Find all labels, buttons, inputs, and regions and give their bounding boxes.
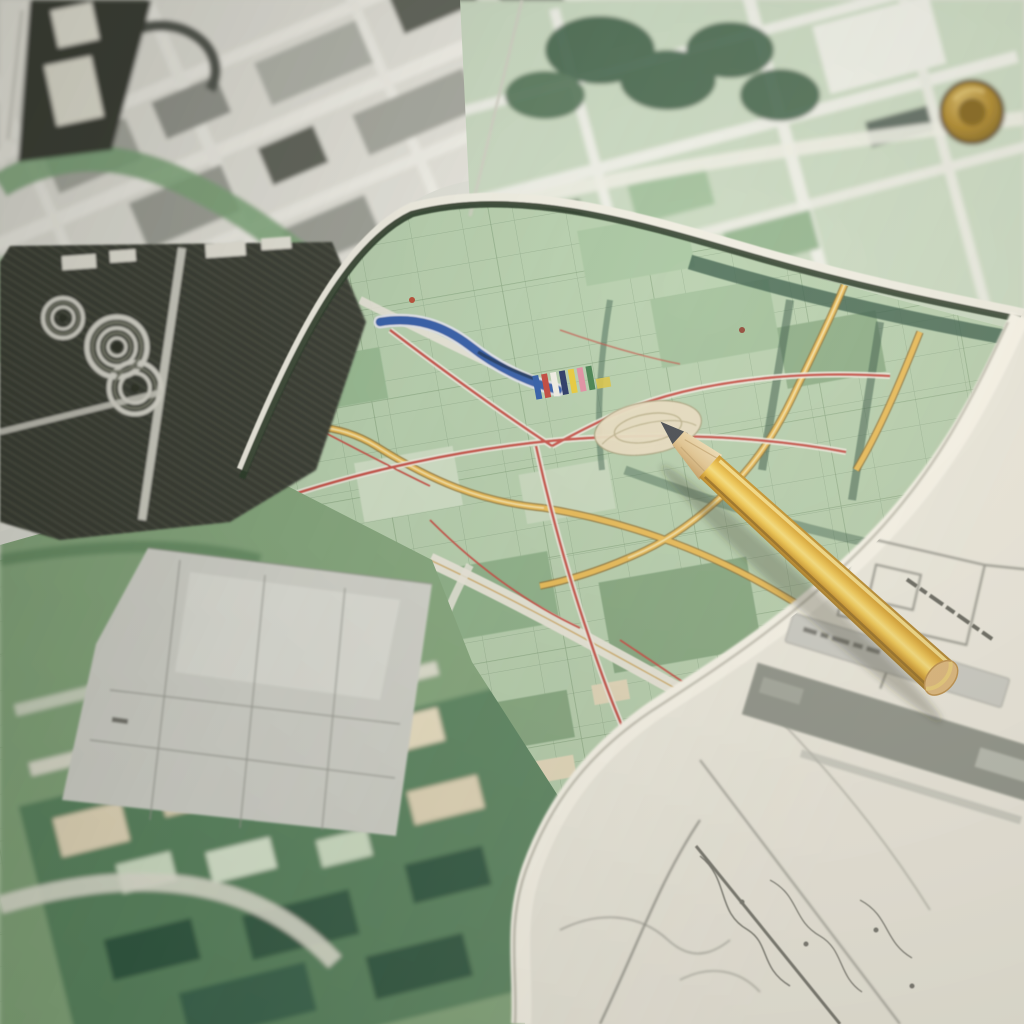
gold-emblem: [941, 81, 1003, 143]
photo-of-maps: [0, 0, 1024, 1024]
maps-scene: [0, 0, 1024, 1024]
